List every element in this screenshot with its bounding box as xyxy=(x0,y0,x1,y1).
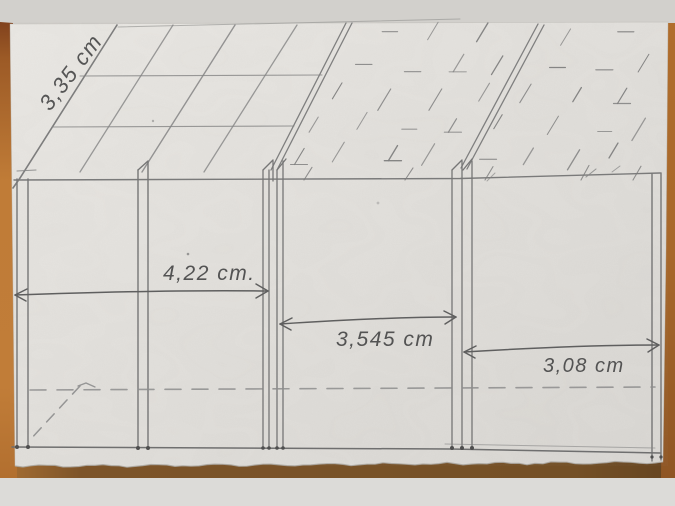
svg-text:3,545 cm: 3,545 cm xyxy=(336,328,434,351)
svg-text:3,08 cm: 3,08 cm xyxy=(543,355,625,377)
svg-text:4,22 cm.: 4,22 cm. xyxy=(163,262,256,285)
